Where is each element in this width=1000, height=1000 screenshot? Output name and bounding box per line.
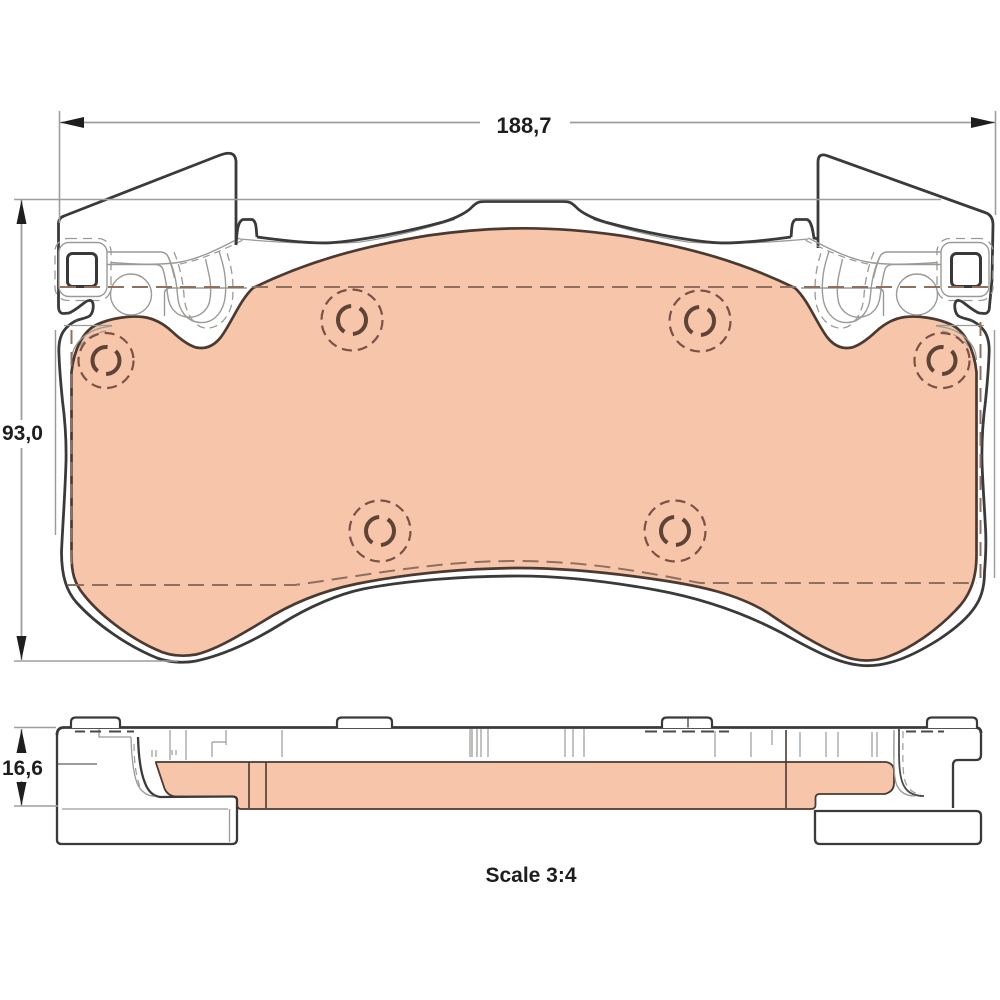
svg-text:16,6: 16,6 <box>2 757 43 780</box>
svg-text:Scale 3:4: Scale 3:4 <box>485 864 576 887</box>
svg-text:188,7: 188,7 <box>496 113 551 138</box>
svg-text:93,0: 93,0 <box>2 422 43 445</box>
